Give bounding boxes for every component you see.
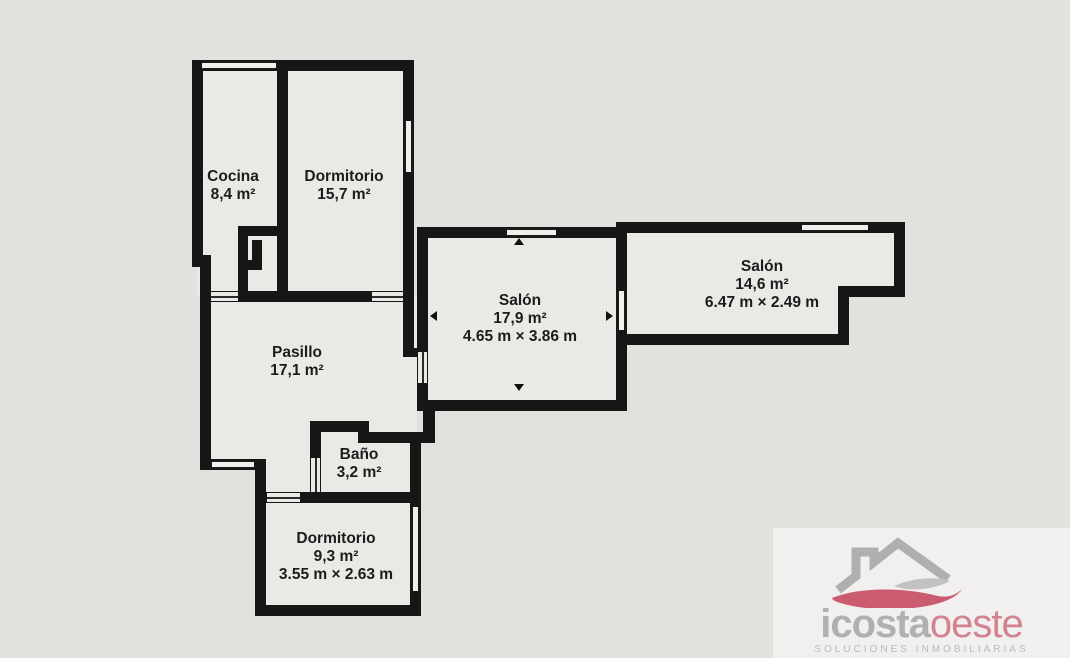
door-opening [211, 292, 238, 301]
room-name: Dormitorio [304, 168, 383, 186]
wall-segment [255, 459, 266, 616]
dimension-arrow-left-icon [430, 311, 437, 321]
room-label-pasillo: Pasillo 17,1 m² [270, 344, 323, 380]
dimension-arrow-up-icon [514, 238, 524, 245]
window-marker [202, 61, 276, 70]
dimension-arrow-right-icon [606, 311, 613, 321]
wall-segment [255, 605, 421, 616]
wall-segment [403, 60, 414, 357]
dimension-arrow-down-icon [514, 384, 524, 391]
house-logo-icon [818, 528, 968, 608]
wall-segment [200, 255, 211, 470]
wall-segment [622, 334, 849, 345]
room-name: Dormitorio [279, 530, 393, 548]
room-dimensions: 6.47 m × 2.49 m [705, 294, 819, 312]
room-name: Salón [705, 258, 819, 276]
room-name: Salón [463, 292, 577, 310]
window-marker [212, 460, 254, 469]
door-opening [372, 292, 403, 301]
room-area: 15,7 m² [304, 186, 383, 204]
room-label-salon-center: Salón 17,9 m² 4.65 m × 3.86 m [463, 292, 577, 346]
agency-logo: icostaoeste SOLUCIONES INMOBILIARIAS [773, 528, 1070, 658]
brand-name-secondary: oeste [930, 602, 1023, 646]
window-marker [404, 121, 413, 172]
room-name: Cocina [207, 168, 259, 186]
wall-segment [248, 260, 262, 270]
room-area: 9,3 m² [279, 548, 393, 566]
window-marker [507, 228, 556, 237]
window-marker [617, 291, 626, 330]
wall-segment [417, 400, 627, 411]
room-label-dormitorio-top: Dormitorio 15,7 m² [304, 168, 383, 204]
wall-segment [848, 286, 905, 297]
wall-segment [192, 60, 203, 266]
room-area: 3,2 m² [337, 464, 382, 482]
room-area: 17,1 m² [270, 362, 323, 380]
room-label-cocina: Cocina 8,4 m² [207, 168, 259, 204]
wall-segment [277, 60, 288, 302]
room-area: 8,4 m² [207, 186, 259, 204]
room-dimensions: 3.55 m × 2.63 m [279, 566, 393, 584]
room-label-dormitorio-bottom: Dormitorio 9,3 m² 3.55 m × 2.63 m [279, 530, 393, 584]
room-dimensions: 4.65 m × 3.86 m [463, 328, 577, 346]
room-label-bano: Baño 3,2 m² [337, 446, 382, 482]
room-label-salon-right: Salón 14,6 m² 6.47 m × 2.49 m [705, 258, 819, 312]
door-opening [418, 352, 427, 383]
room-area: 17,9 m² [463, 310, 577, 328]
brand-name: icostaoeste [773, 604, 1070, 644]
room-area: 14,6 m² [705, 276, 819, 294]
room-name: Baño [337, 446, 382, 464]
window-marker [411, 507, 420, 591]
brand-tagline: SOLUCIONES INMOBILIARIAS [773, 644, 1070, 655]
door-opening [311, 458, 320, 492]
wall-segment [417, 227, 428, 411]
brand-name-primary: icosta [820, 602, 930, 646]
window-marker [802, 223, 868, 232]
wall-segment [238, 226, 248, 302]
door-opening [267, 493, 300, 502]
floor-plan-image: Cocina 8,4 m² Dormitorio 15,7 m² Salón 1… [0, 0, 1070, 658]
wall-segment [363, 432, 435, 443]
room-name: Pasillo [270, 344, 323, 362]
